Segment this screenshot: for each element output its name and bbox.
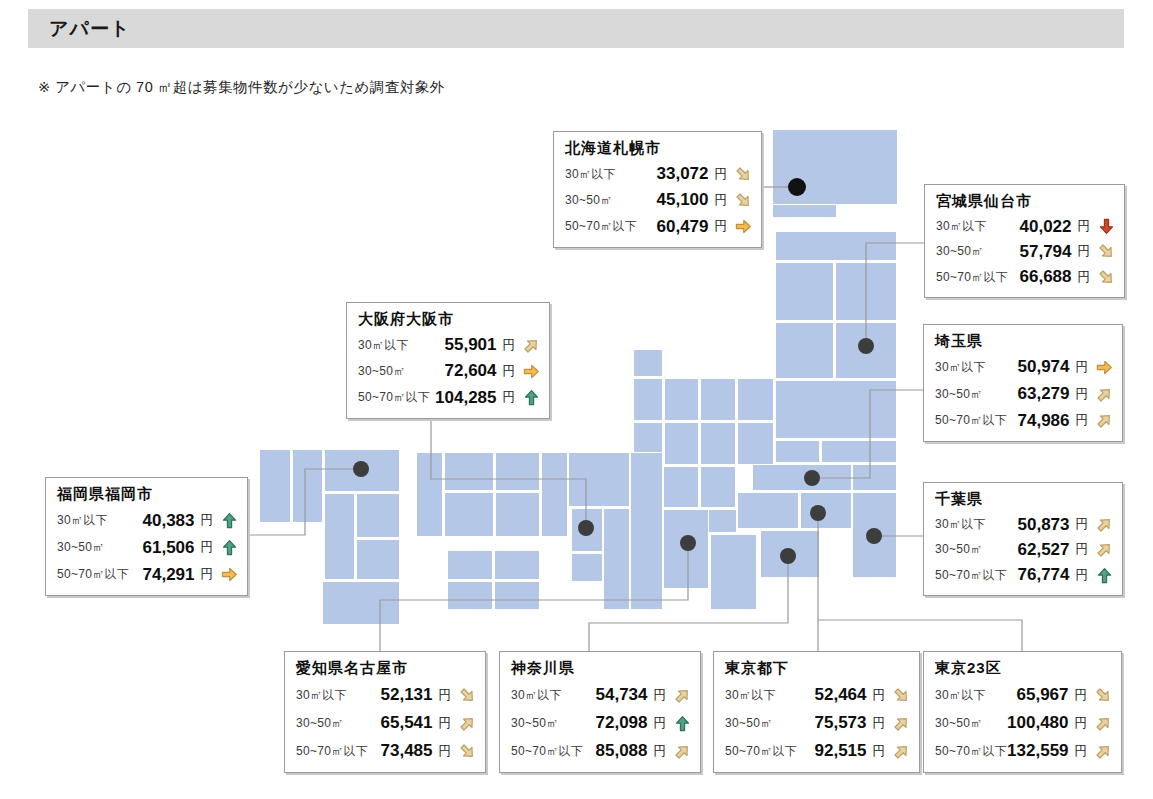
map-tile [633,378,663,421]
price-row: 50~70㎡以下73,485円 [296,737,476,765]
trend-up-right-icon [1092,382,1116,406]
trend-up-right-icon [1092,739,1116,763]
price-value: 63,279 [983,384,1070,404]
trend-up-icon [221,539,238,556]
map-tile [700,422,736,465]
trend-up-icon [221,512,238,529]
page-title-bar: アパート [28,9,1124,48]
size-range-label: 50~70㎡以下 [935,567,1007,584]
connector-line-tokyo-23 [818,620,1022,651]
region-box-kanagawa: 神奈川県30㎡以下54,734円30~50㎡72,098円50~70㎡以下85,… [499,651,701,773]
price-value: 66,688 [1008,267,1071,287]
price-row: 30㎡以下40,383円 [57,507,238,534]
price-unit: 円 [1076,386,1089,403]
price-unit: 円 [1078,218,1091,235]
map-tile [324,449,400,492]
price-unit: 円 [715,166,728,183]
price-value: 50,873 [986,515,1070,535]
region-title: 埼玉県 [935,332,1113,351]
trend-up-icon [674,715,691,732]
trend-up-icon [523,389,540,406]
region-box-sendai: 宮城県仙台市30㎡以下40,022円30~50㎡57,794円50~70㎡以下6… [924,184,1125,298]
region-box-osaka: 大阪府大阪市30㎡以下55,901円30~50㎡72,604円50~70㎡以下1… [346,302,550,419]
map-tile [737,492,799,529]
trend-up-right-icon [670,683,694,707]
size-range-label: 50~70㎡以下 [296,743,368,760]
price-row: 30~50㎡61,506円 [57,534,238,561]
price-row: 30㎡以下50,873円 [935,512,1113,537]
size-range-label: 30~50㎡ [936,243,984,260]
price-value: 65,541 [344,713,433,733]
region-box-fukuoka: 福岡県福岡市30㎡以下40,383円30~50㎡61,506円50~70㎡以下7… [45,477,248,596]
size-range-label: 50~70㎡以下 [936,269,1008,286]
price-value: 73,485 [368,741,432,761]
region-title: 北海道札幌市 [565,139,752,158]
map-tile [324,493,355,580]
region-box-tokyo-tama: 東京都下30㎡以下52,464円30~50㎡75,573円50~70㎡以下92,… [713,651,920,773]
map-tile [541,452,568,537]
map-tile [444,492,494,537]
price-row: 50~70㎡以下74,986円 [935,407,1113,434]
price-row: 30~50㎡62,527円 [935,537,1113,562]
map-tile [447,550,493,580]
region-box-sapporo: 北海道札幌市30㎡以下33,072円30~50㎡45,100円50~70㎡以下6… [553,131,762,248]
price-unit: 円 [1075,743,1088,760]
price-value: 57,794 [984,242,1072,262]
size-range-label: 30~50㎡ [358,363,406,380]
price-row: 30㎡以下33,072円 [565,161,752,187]
price-value: 132,559 [1007,741,1068,761]
map-tile [444,452,494,491]
price-row: 50~70㎡以下104,285円 [358,385,540,411]
price-value: 62,527 [983,540,1070,560]
trend-up-right-icon [1092,409,1116,433]
price-value: 76,774 [1007,565,1069,585]
price-unit: 円 [1075,715,1088,732]
price-unit: 円 [1076,541,1089,558]
size-range-label: 50~70㎡以下 [935,412,1007,429]
price-row: 30~50㎡72,098円 [511,709,691,737]
map-tile [568,452,630,507]
map-tile [737,422,774,465]
map-tile [752,464,852,491]
map-tile [775,380,897,439]
map-tile [356,539,400,580]
price-value: 100,480 [983,713,1069,733]
region-title: 大阪府大阪市 [358,310,540,329]
price-unit: 円 [654,687,667,704]
trend-right-icon [523,363,540,380]
price-unit: 円 [1076,359,1089,376]
price-unit: 円 [1078,243,1091,260]
trend-up-right-icon [1092,513,1116,537]
trend-down-right-icon [731,162,755,186]
price-value: 85,088 [583,741,647,761]
price-row: 30㎡以下52,464円 [725,681,910,709]
price-row: 50~70㎡以下92,515円 [725,737,910,765]
map-tile [700,466,736,508]
price-row: 50~70㎡以下60,479円 [565,214,752,240]
price-unit: 円 [1075,687,1088,704]
map-tile [835,262,897,321]
price-value: 40,022 [987,217,1072,237]
region-title: 神奈川県 [511,659,691,678]
region-title: 愛知県名古屋市 [296,659,476,678]
map-tile [800,492,852,529]
map-tile [571,553,603,582]
size-range-label: 30~50㎡ [57,539,105,556]
price-row: 30㎡以下50,974円 [935,354,1113,381]
price-row: 50~70㎡以下66,688円 [936,265,1115,290]
price-row: 30㎡以下65,967円 [935,681,1112,709]
price-unit: 円 [654,743,667,760]
size-range-label: 50~70㎡以下 [565,218,637,235]
map-tile [664,378,699,421]
map-tile [663,466,699,508]
price-unit: 円 [715,218,728,235]
map-tile [603,508,630,610]
map-tile [664,422,699,465]
map-tile [775,262,834,321]
price-row: 30㎡以下54,734円 [511,681,691,709]
price-unit: 円 [873,687,886,704]
map-tile [447,581,493,610]
apartment-rent-map-page: アパート ※ アパートの 70 ㎡超は募集物件数が少ないため調査対象外 北海道札… [0,0,1153,799]
trend-right-icon [735,218,752,235]
map-tile [494,550,540,580]
price-row: 30~50㎡45,100円 [565,187,752,213]
price-row: 30~50㎡72,604円 [358,358,540,384]
map-tile [495,452,540,491]
price-unit: 円 [439,715,452,732]
price-unit: 円 [503,363,516,380]
trend-right-icon [1096,359,1113,376]
trend-down-right-icon [1091,683,1115,707]
trend-up-right-icon [1091,711,1115,735]
price-value: 54,734 [562,685,648,705]
price-value: 75,573 [773,713,867,733]
price-value: 55,901 [409,335,497,355]
trend-down-right-icon [731,188,755,212]
region-box-saitama: 埼玉県30㎡以下50,974円30~50㎡63,279円50~70㎡以下74,9… [923,324,1123,442]
price-row: 30~50㎡57,794円 [936,239,1115,264]
price-unit: 円 [439,743,452,760]
price-value: 61,506 [105,538,195,558]
price-row: 50~70㎡以下132,559円 [935,737,1112,765]
survey-note: ※ アパートの 70 ㎡超は募集物件数が少ないため調査対象外 [38,78,445,97]
price-row: 50~70㎡以下85,088円 [511,737,691,765]
map-tile [700,378,736,421]
trend-right-icon [221,566,238,583]
region-title: 福岡県福岡市 [57,485,238,504]
price-unit: 円 [1078,269,1091,286]
price-unit: 円 [654,715,667,732]
map-tile [571,508,603,552]
price-value: 72,604 [406,361,497,381]
price-unit: 円 [1076,412,1089,429]
price-row: 30~50㎡100,480円 [935,709,1112,737]
map-tile [775,322,834,379]
region-title: 宮城県仙台市 [936,192,1115,211]
price-value: 72,098 [559,713,648,733]
size-range-label: 30㎡以下 [57,512,108,529]
price-row: 30~50㎡63,279円 [935,381,1113,408]
price-value: 60,479 [637,217,708,237]
trend-down-icon [1098,218,1115,235]
price-value: 40,383 [108,511,195,531]
region-title: 東京23区 [935,659,1112,678]
size-range-label: 30㎡以下 [358,337,409,354]
map-tile [495,492,540,537]
price-unit: 円 [1076,567,1089,584]
price-row: 50~70㎡以下76,774円 [935,563,1113,588]
size-range-label: 30~50㎡ [725,715,773,732]
price-value: 65,967 [986,685,1069,705]
map-tile [772,204,837,218]
page-title: アパート [28,16,130,42]
price-value: 52,464 [776,685,867,705]
size-range-label: 30㎡以下 [936,218,987,235]
trend-up-right-icon [670,739,694,763]
trend-down-right-icon [1094,240,1118,264]
map-tile [633,349,663,377]
region-box-tokyo-23: 東京23区30㎡以下65,967円30~50㎡100,480円50~70㎡以下1… [923,651,1122,773]
trend-down-right-icon [455,739,479,763]
size-range-label: 30~50㎡ [511,715,559,732]
size-range-label: 30㎡以下 [935,359,986,376]
size-range-label: 30~50㎡ [935,386,983,403]
map-tile [356,493,400,538]
price-unit: 円 [201,539,214,556]
map-tile [292,449,323,523]
size-range-label: 30㎡以下 [725,687,776,704]
price-value: 33,072 [616,164,709,184]
price-row: 30~50㎡65,541円 [296,709,476,737]
map-tile [775,440,820,463]
map-tile [663,509,709,589]
map-tile [760,530,820,578]
price-unit: 円 [201,512,214,529]
map-tile [775,231,897,261]
price-unit: 円 [503,337,516,354]
map-tile [737,378,774,421]
price-row: 30㎡以下55,901円 [358,332,540,358]
price-unit: 円 [715,192,728,209]
trend-down-right-icon [1094,265,1118,289]
map-tile [416,452,443,537]
map-tile [494,581,540,610]
price-unit: 円 [873,715,886,732]
region-box-nagoya: 愛知県名古屋市30㎡以下52,131円30~50㎡65,541円50~70㎡以下… [284,651,486,773]
price-unit: 円 [439,687,452,704]
price-value: 92,515 [797,741,866,761]
price-value: 50,974 [986,357,1070,377]
trend-up-right-icon [455,711,479,735]
size-range-label: 30㎡以下 [511,687,562,704]
size-range-label: 50~70㎡以下 [511,743,583,760]
size-range-label: 30㎡以下 [565,166,616,183]
region-title: 千葉県 [935,490,1113,509]
map-tile [322,581,400,625]
size-range-label: 30~50㎡ [565,192,613,209]
map-tile [852,492,897,578]
price-unit: 円 [201,566,214,583]
map-tile [852,464,897,491]
price-unit: 円 [503,389,516,406]
price-unit: 円 [873,743,886,760]
map-tile [630,452,663,610]
map-tile [821,440,897,463]
price-unit: 円 [1076,516,1089,533]
trend-up-right-icon [519,333,543,357]
price-value: 52,131 [347,685,433,705]
trend-up-icon [1096,567,1113,584]
size-range-label: 30㎡以下 [935,516,986,533]
trend-down-right-icon [455,683,479,707]
size-range-label: 30~50㎡ [296,715,344,732]
price-value: 74,291 [129,565,194,585]
price-value: 74,986 [1007,411,1069,431]
price-value: 45,100 [613,190,709,210]
trend-up-right-icon [1092,538,1116,562]
trend-down-right-icon [889,683,913,707]
trend-up-right-icon [889,711,913,735]
size-range-label: 30㎡以下 [296,687,347,704]
price-row: 30㎡以下40,022円 [936,214,1115,239]
price-row: 30㎡以下52,131円 [296,681,476,709]
size-range-label: 30㎡以下 [935,687,986,704]
map-tile [259,449,291,523]
price-row: 30~50㎡75,573円 [725,709,910,737]
region-box-chiba: 千葉県30㎡以下50,873円30~50㎡62,527円50~70㎡以下76,7… [923,482,1123,596]
price-row: 50~70㎡以下74,291円 [57,561,238,588]
map-tile [835,322,897,379]
map-tile [710,534,757,610]
size-range-label: 30~50㎡ [935,541,983,558]
size-range-label: 50~70㎡以下 [725,743,797,760]
size-range-label: 50~70㎡以下 [358,389,430,406]
size-range-label: 50~70㎡以下 [57,566,129,583]
trend-up-right-icon [889,739,913,763]
map-tile [772,129,898,205]
price-value: 104,285 [430,388,496,408]
region-title: 東京都下 [725,659,910,678]
size-range-label: 50~70㎡以下 [935,743,1007,760]
size-range-label: 30~50㎡ [935,715,983,732]
